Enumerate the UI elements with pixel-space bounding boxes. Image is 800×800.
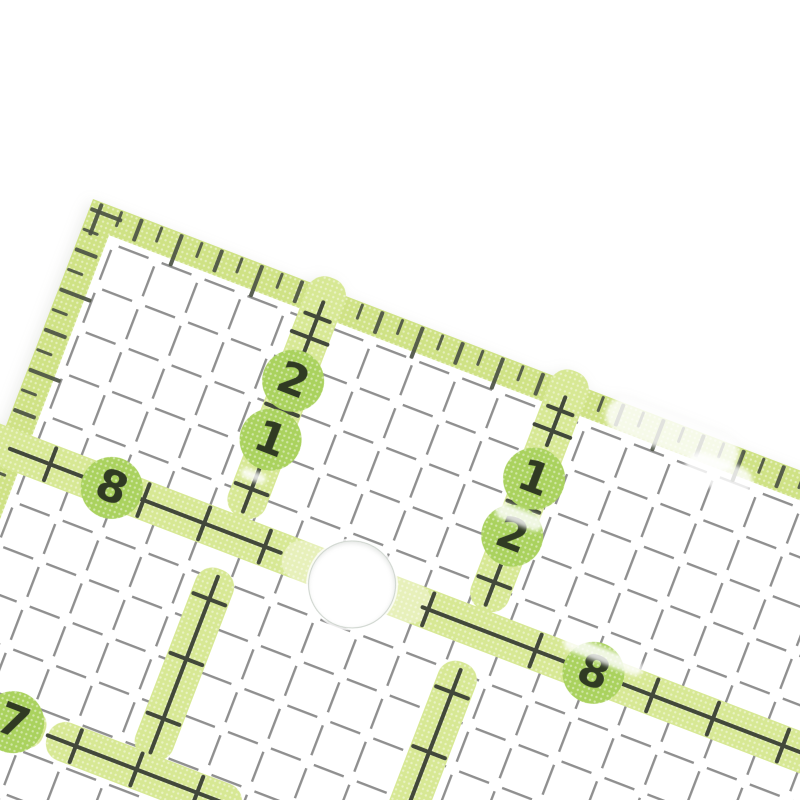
ruler-number: 7 bbox=[0, 696, 35, 748]
ruler-number: 8 bbox=[90, 462, 134, 514]
ruler-number: 1 bbox=[248, 414, 292, 466]
quilting-ruler: 2112887 bbox=[0, 199, 800, 800]
ruler-number: 2 bbox=[271, 355, 315, 407]
product-photo: 2112887 bbox=[0, 0, 800, 800]
ruler-number: 1 bbox=[512, 453, 556, 505]
